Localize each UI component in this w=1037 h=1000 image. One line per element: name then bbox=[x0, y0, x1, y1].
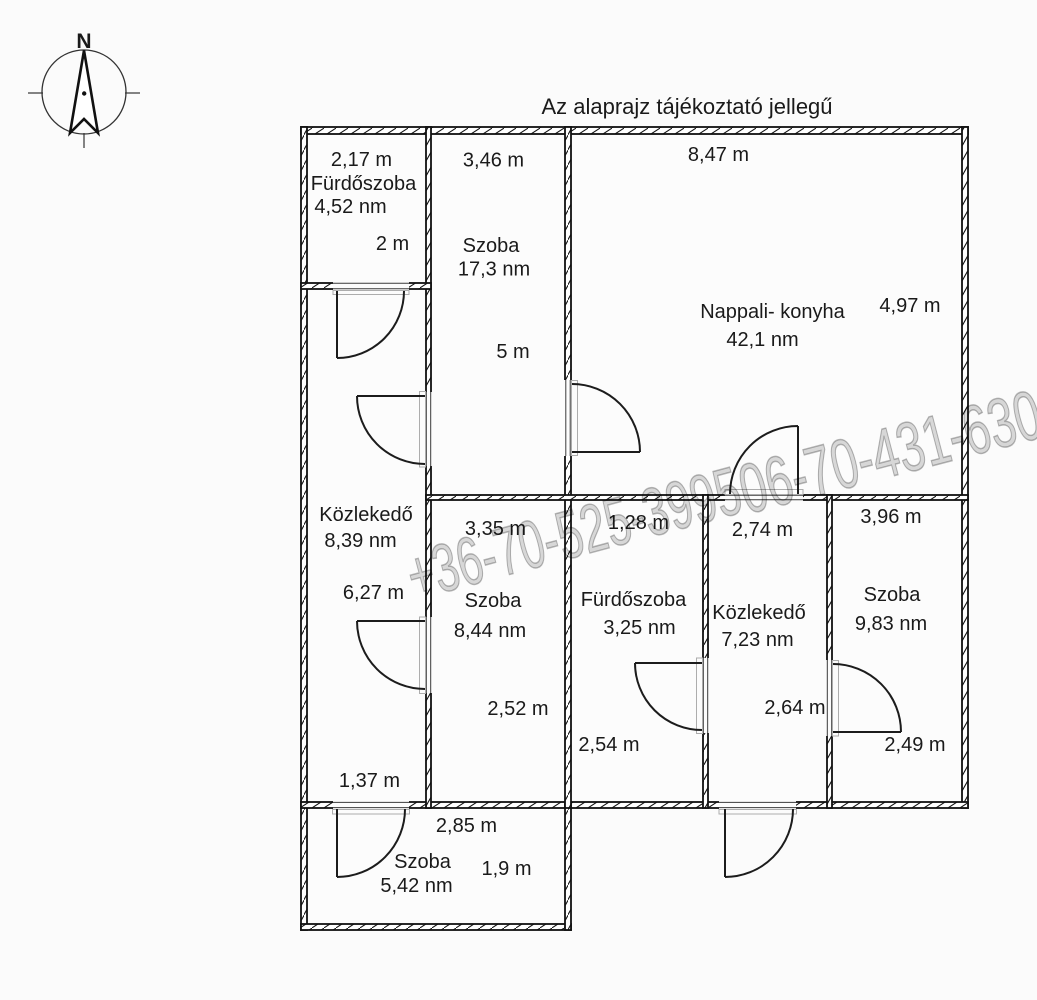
svg-text:5 m: 5 m bbox=[496, 341, 529, 363]
svg-text:Szoba: Szoba bbox=[864, 584, 922, 606]
svg-text:4,52 nm: 4,52 nm bbox=[314, 196, 386, 218]
svg-text:8,39 nm: 8,39 nm bbox=[324, 530, 396, 552]
svg-text:17,3 nm: 17,3 nm bbox=[458, 259, 530, 281]
svg-text:N: N bbox=[76, 30, 91, 53]
svg-text:Szoba: Szoba bbox=[394, 851, 452, 873]
svg-text:3,46 m: 3,46 m bbox=[463, 150, 524, 172]
svg-text:1,37 m: 1,37 m bbox=[339, 770, 400, 792]
svg-text:2,49 m: 2,49 m bbox=[884, 734, 945, 756]
svg-text:2 m: 2 m bbox=[376, 233, 409, 255]
svg-text:Nappali- konyha: Nappali- konyha bbox=[700, 301, 845, 323]
svg-text:2,54 m: 2,54 m bbox=[578, 734, 639, 756]
svg-text:7,23 nm: 7,23 nm bbox=[721, 629, 793, 651]
svg-text:8,44 nm: 8,44 nm bbox=[454, 620, 526, 642]
svg-text:6,27 m: 6,27 m bbox=[343, 582, 404, 604]
svg-text:9,83 nm: 9,83 nm bbox=[855, 613, 927, 635]
svg-text:Közlekedő: Közlekedő bbox=[712, 602, 805, 624]
svg-text:42,1 nm: 42,1 nm bbox=[726, 329, 798, 351]
svg-text:Szoba: Szoba bbox=[463, 235, 521, 257]
svg-text:Fürdőszoba: Fürdőszoba bbox=[311, 173, 417, 195]
svg-text:2,17 m: 2,17 m bbox=[331, 149, 392, 171]
svg-text:3,96 m: 3,96 m bbox=[860, 506, 921, 528]
svg-text:2,64 m: 2,64 m bbox=[764, 697, 825, 719]
svg-text:8,47 m: 8,47 m bbox=[688, 144, 749, 166]
svg-text:Közlekedő: Közlekedő bbox=[319, 504, 412, 526]
svg-text:1,9 m: 1,9 m bbox=[481, 858, 531, 880]
svg-text:Az alaprajz tájékoztató jelleg: Az alaprajz tájékoztató jellegű bbox=[541, 94, 832, 119]
svg-text:2,85 m: 2,85 m bbox=[436, 815, 497, 837]
svg-text:3,25 nm: 3,25 nm bbox=[603, 617, 675, 639]
svg-text:2,52 m: 2,52 m bbox=[487, 698, 548, 720]
svg-text:4,97 m: 4,97 m bbox=[879, 295, 940, 317]
svg-text:Fürdőszoba: Fürdőszoba bbox=[581, 589, 687, 611]
svg-text:5,42 nm: 5,42 nm bbox=[380, 875, 452, 897]
